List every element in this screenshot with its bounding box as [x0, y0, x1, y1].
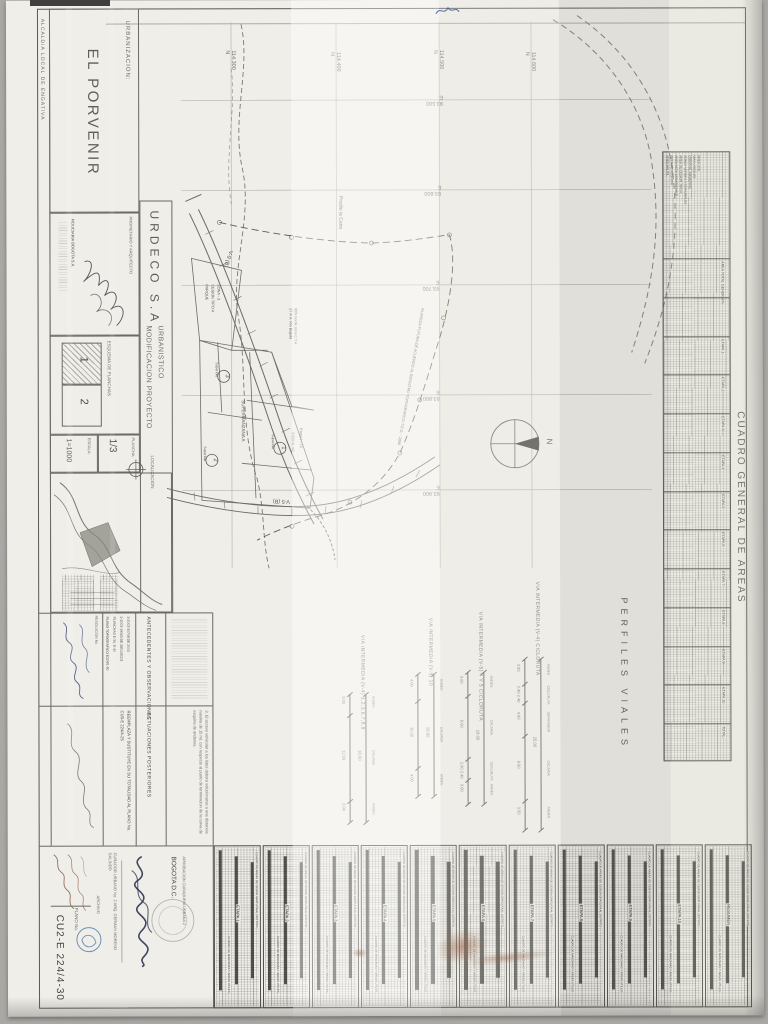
antecedentes-content: PLANO TOPOGRAFICO E224/1-90PLANCHAS E-36…	[105, 617, 133, 703]
etapa-caption-bar	[317, 850, 320, 990]
road-hatches	[193, 230, 420, 516]
parcel-number: 1	[280, 446, 286, 450]
dim-tick	[481, 802, 487, 807]
dim-part-label: ANDEN	[489, 676, 493, 688]
dim-part-label: SEPARADOR	[546, 711, 550, 731]
etapa-caption-a: CUADRO DE AREAS DE CESION GRATUITA AL DI…	[402, 852, 406, 927]
dim-value: 3.50	[517, 807, 522, 815]
profile-total-line	[483, 672, 484, 804]
cuadro-band-label: ETAPA 7	[721, 571, 725, 585]
grid-e-label: 93.500 E	[426, 94, 443, 106]
etapa-caption-bar	[268, 850, 271, 990]
etapa-caption-bar	[611, 850, 614, 990]
dim-value: 10.00	[409, 726, 414, 736]
etapa-label: ETAPA 7	[530, 904, 535, 922]
dim-part-label: CALZADA	[372, 750, 376, 765]
road-v9b	[185, 194, 323, 524]
north-compass-icon: N	[491, 420, 554, 468]
etapa-caption-bar	[693, 861, 696, 977]
road-profile: VIA INTERMEDIA (V-4) CICLORUTA3.00ANDEN2…	[522, 582, 557, 840]
dim-part-label: CALZADA	[489, 719, 493, 734]
etapa-table-block: ETAPA 9CUADRO DE AREAS DE CESION GRATUIT…	[606, 844, 653, 1007]
blue-check-stamp	[74, 923, 104, 957]
etapa-caption-bar	[594, 862, 597, 978]
supermanzana-label: SUPERMANZANA A	[241, 400, 246, 441]
esquema-sheet1-num: 1	[78, 357, 90, 363]
cuadro-band-separator	[664, 491, 730, 492]
rio-line-west	[236, 24, 269, 568]
etapa-caption-b: CUADRO DE MANZANAS Y AREAS UTILES	[620, 936, 624, 992]
profile-total: 18.00	[358, 750, 363, 760]
cuadro-band-label: ETAPA 3	[721, 416, 725, 430]
etapa-caption-a: CUADRO DE AREAS DE CESION GRATUITA AL DI…	[697, 851, 701, 926]
park-label: ZONA - 3	[217, 284, 221, 300]
etapa-caption-b: CUADRO DE MANZANAS Y AREAS UTILES	[276, 936, 280, 992]
etapa-caption-a: CUADRO DE AREAS DE CESION GRATUITA AL DI…	[598, 852, 602, 927]
dim-value: 3.00	[459, 676, 464, 684]
cuadro-band-label: ETAPA 2	[721, 378, 725, 392]
cuadro-band-label: %	[721, 300, 725, 303]
parcel-number: 2	[212, 458, 218, 462]
esquema-sheet2: 2	[62, 385, 102, 427]
dim-value: 2.40 2.40	[516, 685, 521, 702]
grid-e-label: 93.700 E	[423, 279, 440, 291]
dim-part-label: ANDEN	[439, 679, 443, 691]
etapa-caption-bar	[464, 850, 467, 990]
perfiles-title: PERFILES VIALES	[619, 597, 629, 750]
park-label: PARQUE	[205, 284, 209, 300]
grid-n-label: 114.500 N	[432, 50, 444, 70]
profile-total-line	[540, 659, 541, 829]
etapa-table-block: ETAPA 7CUADRO DE AREAS DE CESION GRATUIT…	[508, 845, 555, 1008]
etapa-tag: Etapa I - 10	[299, 428, 303, 448]
etapa-label: ETAPA 10	[677, 903, 682, 924]
archivo-label: ARCHIVO	[96, 896, 101, 914]
dim-tick	[465, 802, 471, 807]
etapa-label: ETAPA 2	[284, 904, 289, 922]
dim-value: 4.00	[516, 711, 521, 719]
etapa-table-block: ETAPA 3CUADRO DE AREAS DE CESION GRATUIT…	[312, 845, 359, 1008]
etapa-caption-b: CUADRO DE MANZANAS Y AREAS UTILES	[571, 936, 575, 992]
dim-part-label: ANDEN	[547, 807, 551, 819]
etapa-caption-a: CUADRO DE AREAS DE CESION GRATUITA AL DI…	[451, 852, 455, 927]
etapa-caption-b: CUADRO DE MANZANAS Y AREAS UTILES	[521, 936, 525, 992]
etapa-label: ETAPA 6	[481, 904, 486, 922]
etapa-caption-bar	[300, 862, 303, 978]
curador-label: CURADOR URBANO No. 2 ARQ. GERMAN MORENO …	[108, 853, 118, 953]
etapa-caption-a: CUADRO DE AREAS DE CESION GRATUITA AL DI…	[255, 852, 259, 927]
etapa-caption-bar	[447, 862, 450, 978]
etapa-label: ETAPA 1	[235, 904, 240, 922]
cuadro-band-separator	[664, 607, 730, 608]
profile-dim-line	[467, 672, 468, 804]
company-name: URDECO S.A.	[147, 210, 161, 332]
dim-value: 2.60 2.40	[460, 762, 465, 779]
etapa-caption-bar	[710, 849, 713, 989]
scanned-plan-sheet: ALCALDIA LOCAL DE ENGATIVA URBANIZACION:…	[0, 0, 768, 1024]
resolucion-handwriting	[55, 619, 95, 701]
etapa-caption-bar	[643, 861, 646, 977]
etapa-caption-b: CUADRO DE MANZANAS Y AREAS UTILES	[718, 935, 722, 991]
dim-value: 3.00	[341, 696, 346, 704]
etapa-caption-bar	[415, 850, 418, 990]
dim-part-label: ANDEN	[372, 803, 376, 815]
parcel-sublabel: Superlote	[215, 362, 219, 377]
dim-tick	[431, 793, 437, 798]
etapa-caption-a: CUADRO DE AREAS DE CESION GRATUITA AL DI…	[746, 851, 750, 926]
etapa-caption-a: CUADRO DE AREAS DE CESION GRATUITA AL DI…	[304, 852, 308, 927]
cuadro-band-separator	[664, 568, 730, 569]
cuadro-band-separator	[664, 375, 730, 376]
etapa-table-block: ETAPA 2CUADRO DE AREAS DE CESION GRATUIT…	[263, 845, 310, 1008]
dim-value: 3.00	[342, 804, 347, 812]
dim-value: 4.00	[409, 679, 414, 687]
etapa-caption-b: CUADRO DE MANZANAS Y AREAS UTILES	[227, 936, 231, 992]
cuadro-band-separator	[664, 685, 730, 686]
parcel-area: 3.543,41 m2	[291, 432, 295, 452]
etapa-caption-b: CUADRO DE MANZANAS Y AREAS UTILES	[472, 936, 476, 992]
profile-total: 25.00	[532, 736, 537, 746]
etapa-table-block: ETAPA 5CUADRO DE AREAS DE CESION GRATUIT…	[410, 845, 457, 1008]
cuadro-band-label: TOTAL	[721, 727, 725, 738]
dim-part-label: CALZADA	[547, 760, 551, 775]
etapa-label: ETAPA 3	[334, 904, 339, 922]
etapa-caption-b: CUADRO DE MANZANAS Y AREAS UTILES	[374, 936, 378, 992]
cuadro-band-label: ETAPA 10	[721, 688, 725, 704]
parcel-number: 3	[224, 374, 230, 378]
cuadro-band-label: AREA TOTAL GENERAL	[720, 261, 724, 301]
blue-pen-mark	[434, 4, 460, 18]
cuadro-band-separator	[664, 723, 730, 724]
cuadro-band-separator	[664, 297, 730, 298]
road-profile: VIA INTERMEDIA (V-4) 1,2,3,6,7,8,93.00AN…	[347, 635, 381, 830]
grid-n-label: 114.600 N	[524, 52, 536, 72]
plancha-label: PLANCHA:	[131, 438, 136, 458]
etapa-caption-bar	[545, 862, 548, 978]
dim-value: 4.00	[410, 774, 415, 782]
dim-tick	[347, 820, 353, 825]
cuadro-band-label: ETAPA 6	[721, 533, 725, 547]
cuadro-band-separator	[664, 530, 730, 531]
bogota-label: BOGOTA D.C.	[170, 856, 177, 898]
cuadro-band-separator	[664, 646, 730, 647]
cuadro-band-separator	[664, 452, 730, 453]
etapa-caption-bar	[219, 850, 222, 990]
cuadro-band-separator	[664, 336, 730, 337]
project-title: EL PORVENIR	[84, 49, 101, 177]
etapa-caption-bar	[366, 850, 369, 990]
etapa-caption-a: CUADRO DE AREAS DE CESION GRATUITA AL DI…	[549, 852, 553, 927]
plano-no-value: CU2-E 224/4-30	[54, 915, 65, 1001]
antecedentes-line: 3-2003-30708 DE 2003	[126, 617, 130, 652]
cuadro-row-labels: AREA BRUTAAREA DE RESERVAAREA NETA URBAN…	[665, 155, 727, 255]
etapa-table-block: ETAPA 8CUADRO DE AREAS DE CESION GRATUIT…	[557, 845, 604, 1008]
scanner-notch	[30, 0, 110, 6]
etapa-table-block: ETAPA 10CUADRO DE AREAS DE CESION GRATUI…	[656, 844, 703, 1007]
etapa-caption-a: CUADRO DE AREAS DE CESION GRATUITA AL DI…	[648, 851, 652, 926]
cuadro-band-label: ETAPA 8	[721, 610, 725, 624]
etapa-label: ETAPA 8	[579, 904, 584, 922]
etapa-table-block: ETAPA 1CUADRO DE AREAS DE CESION GRATUIT…	[214, 845, 261, 1008]
etapa-caption-b: CUADRO DE MANZANAS Y AREAS UTILES	[669, 935, 673, 991]
approval-signature-small	[57, 716, 99, 831]
cuadro-band-label: ETAPA 9	[721, 649, 725, 663]
dim-tick	[363, 820, 369, 825]
antecedentes-line: PLANCHAS E-36, E-40	[112, 617, 116, 652]
road-label-v5b: V-5 (B)	[273, 498, 290, 505]
cuadro-band-separator	[664, 413, 730, 414]
alcaldia-label: ALCALDIA LOCAL DE ENGATIVA	[39, 19, 45, 121]
compass-n-label: N	[545, 439, 554, 445]
rio-note: 60% borde zona C.T.A.	[294, 308, 298, 345]
grid-e-label: 93.600 E	[424, 184, 441, 196]
subtitle-line1: MODIFICACION PROYECTO	[145, 325, 152, 428]
dim-value: 8.00	[517, 760, 522, 768]
dim-value: 3.00	[516, 663, 521, 671]
esquema-sheet2-num: 2	[78, 399, 90, 405]
etapa-label: ETAPA 5	[432, 904, 437, 922]
grid-e-label: 93.800 E	[423, 389, 440, 401]
architect-signature	[76, 256, 136, 334]
etapa-caption-bar	[661, 849, 664, 989]
dim-part-label: CICLORUTA	[490, 762, 494, 781]
antecedentes-label: ANTECEDENTES Y OBSERVACIONES	[145, 616, 151, 719]
parcel-sublabel: Superlote	[203, 446, 207, 461]
rio-note: 27 m A. Rio Bogota	[289, 308, 293, 339]
etapa-caption-b: CUADRO DE MANZANAS Y AREAS UTILES	[423, 936, 427, 992]
dim-tick	[415, 793, 421, 798]
nota-text: 3. El acceso vehicular a los lotes deber…	[169, 710, 209, 836]
actuaciones-label: ACTUACIONES POSTERIORES	[145, 712, 151, 797]
cuadro-general-table: AREA BRUTAAREA DE RESERVAAREA NETA URBAN…	[662, 151, 731, 761]
round-stamp	[148, 895, 198, 945]
antecedentes-line: 2-2003-19063 DE 28/10/2003	[119, 617, 123, 662]
profile-dim-line	[417, 673, 418, 795]
parcels	[191, 258, 314, 508]
coordinate-grid	[181, 21, 652, 568]
etapa-caption-b: CUADRO DE MANZANAS Y AREAS UTILES	[325, 936, 329, 992]
alameda-note: ALAMEDA FUTURA DE ACUERDO AL REGISTRO TO…	[397, 308, 425, 446]
observaciones-microtext	[171, 618, 207, 698]
cuadro-general-title: CUADRO GENERAL DE AREAS	[735, 411, 746, 603]
road-profile: VIA INTERMEDIA (V-5) 4 Y 5 CICLORUTA3.00…	[465, 612, 499, 812]
park-label: CESION TIPO A	[211, 284, 215, 312]
dim-value: 12.00	[342, 750, 347, 760]
plancha-value: 1/3	[107, 439, 118, 453]
etapa-table-block: RESUMENCUADRO DE AREAS DE CESION GRATUIT…	[705, 844, 752, 1007]
profile-total-line	[433, 673, 434, 795]
convenciones-microtable	[62, 575, 94, 611]
owner-address-microtext	[58, 221, 67, 291]
grid-n-label: 114.400 N	[329, 52, 341, 72]
dim-part-label: ANDEN	[440, 774, 444, 786]
etapa-table-block: ETAPA 4CUADRO DE AREAS DE CESION GRATUIT…	[361, 845, 408, 1008]
alameda-boundary	[217, 220, 453, 540]
etapa-label: ETAPA 9	[628, 903, 633, 921]
esquema-label: ESQUEMA DE PLANCHAS	[107, 341, 112, 396]
etapa-caption-bar	[251, 862, 254, 978]
convenciones-microtable-2	[100, 575, 118, 611]
etapa-table-block: ETAPA 6CUADRO DE AREAS DE CESION GRATUIT…	[459, 845, 506, 1008]
etapa-caption-bar	[398, 862, 401, 978]
grid-e-label: 93.900 E	[423, 484, 440, 496]
dim-value: 3.00	[460, 784, 465, 792]
profile-total: 18.00	[475, 730, 480, 740]
dim-part-label: CALZADA	[439, 726, 443, 741]
road-v5b	[167, 457, 440, 561]
etapa-label: RESUMEN	[726, 903, 731, 926]
dim-tick	[538, 827, 544, 832]
predio-label: Predio la Cano	[337, 196, 343, 229]
escala-label: ESCALA:	[87, 438, 92, 455]
dim-value: 8.00	[459, 719, 464, 727]
road-profile: VIA INTERMEDIA (V-5) 104.00ANDEN10.00CAL…	[415, 618, 449, 803]
etapa-caption-a: CUADRO DE AREAS DE CESION GRATUITA AL DI…	[500, 852, 504, 927]
dim-tick	[522, 827, 528, 832]
cuadro-band-label: ETAPA 1	[721, 339, 725, 353]
antecedentes-line: PLANO TOPOGRAFICO E224/1-90	[105, 617, 109, 671]
pencil-notes	[48, 851, 90, 913]
actuaciones-text: REEMPLAZA Y SUSTITUYE EN SU TOTALIDAD AL…	[105, 711, 131, 839]
dim-part-label: ANDEN	[546, 663, 550, 675]
subtitle-line2: URBANISTICO	[157, 325, 164, 378]
aprobacion-label: APROBACION CURADURIA URBANA 2	[182, 856, 186, 925]
bottom-tables-strip: ETAPA 1CUADRO DE AREAS DE CESION GRATUIT…	[214, 844, 754, 1008]
cuadro-band-label: ETAPA 4	[721, 455, 725, 469]
etapa-caption-bar	[496, 862, 499, 978]
profile-total-line	[365, 694, 366, 823]
etapa-caption-a: CUADRO DE AREAS DE CESION GRATUITA AL DI…	[353, 852, 357, 927]
owner-name: FIDUCIARIA BOGOTA S.A.	[70, 219, 75, 268]
etapa-caption-bar	[742, 861, 745, 977]
etapa-label: ETAPA 4	[383, 904, 388, 922]
urbanizacion-label: URBANIZACION:	[124, 21, 130, 81]
etapa-caption-bar	[513, 850, 516, 990]
esquema-sheet1: 1	[62, 343, 102, 385]
grid-n-label: 114.300 N	[224, 50, 236, 70]
profile-total: 18.00	[425, 726, 430, 736]
site-plan-map: N V-9 (B)V-5 (B)SUPERMANZANA APredio la …	[171, 7, 662, 575]
etapa-caption-bar	[349, 862, 352, 978]
cuadro-row-label: AREA UTIL	[697, 155, 701, 255]
parcel-sublabel: Superlote	[271, 434, 275, 449]
dim-part-label: CICLORUTA	[546, 685, 550, 704]
dim-part-label: ANDEN	[371, 696, 375, 708]
paper: ALCALDIA LOCAL DE ENGATIVA URBANIZACION:…	[6, 0, 764, 1017]
dim-part-label: ANDEN	[490, 784, 494, 796]
cuadro-band-separator	[663, 258, 729, 259]
escala-value: 1=1000	[65, 439, 72, 463]
cuadro-band-label: ETAPA 5	[721, 494, 725, 508]
etapa-caption-bar	[562, 850, 565, 990]
